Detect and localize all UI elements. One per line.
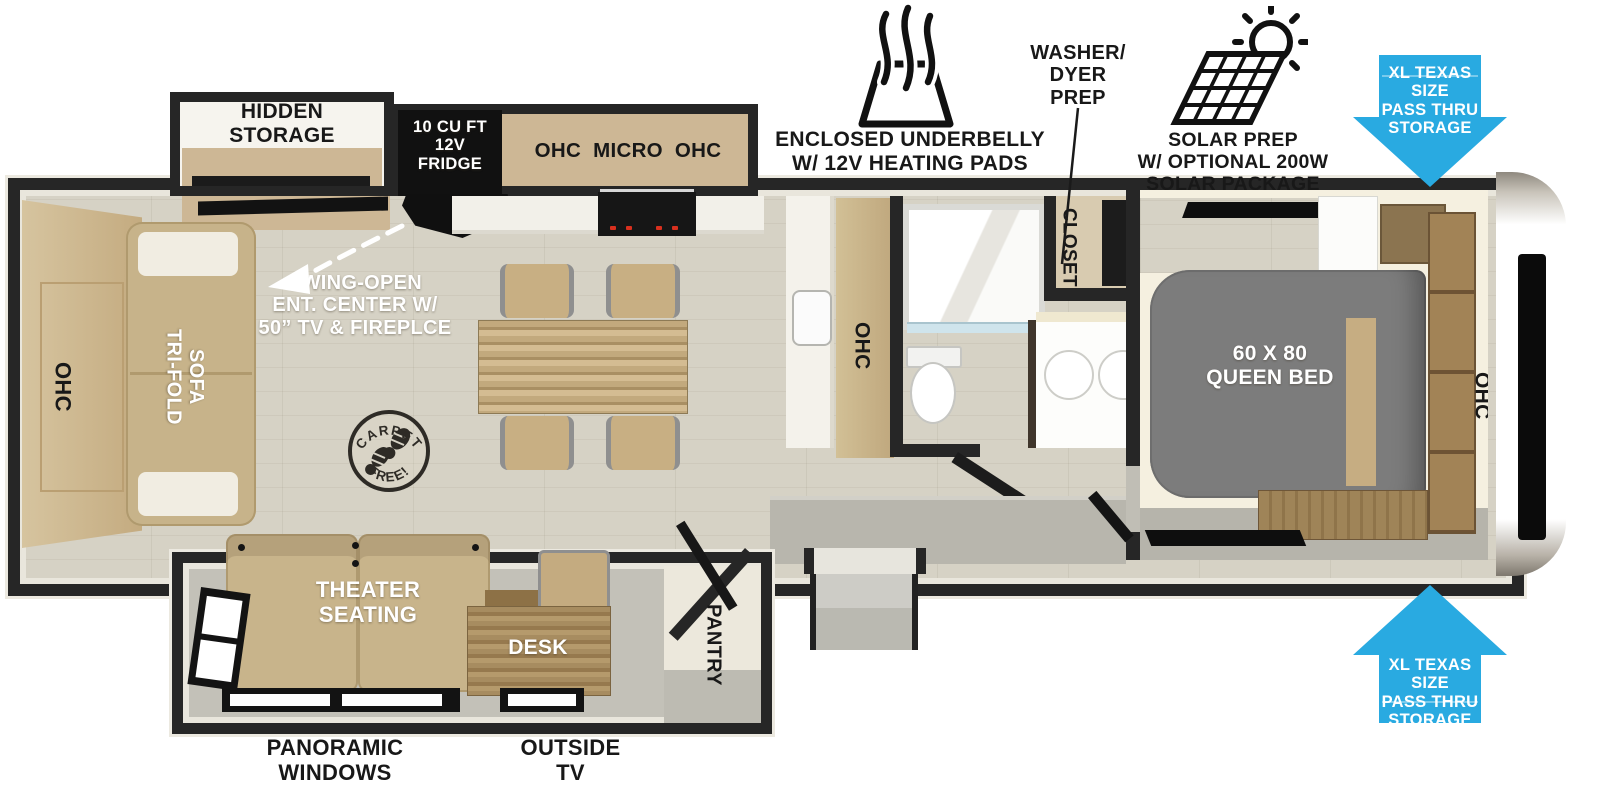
carpet-free-stamp: CARPET FREE! — [346, 408, 432, 494]
panoramic-windows-label: PANORAMIC WINDOWS — [230, 736, 440, 785]
rear-overhead-label: OHC — [50, 332, 75, 442]
dining-chair — [606, 416, 680, 470]
cupholder — [352, 542, 359, 549]
cupholder — [472, 544, 479, 551]
slide-window — [500, 688, 584, 712]
vanity-sink — [1098, 350, 1126, 400]
window-pane — [195, 639, 236, 682]
window-pane — [230, 694, 330, 706]
bedroom-doorway-floor — [1126, 466, 1140, 532]
underbelly-label: ENCLOSED UNDERBELLY W/ 12V HEATING PADS — [745, 128, 1075, 175]
queen-bed-label: 60 X 80 QUEEN BED — [1150, 342, 1390, 389]
bedroom-wall-upper — [1126, 190, 1140, 466]
bathroom-left-wall — [890, 196, 903, 448]
heating-pads-icon — [842, 2, 970, 130]
hidden-storage-label: HIDDEN STORAGE — [180, 100, 384, 147]
closet-left-wall — [1044, 196, 1056, 296]
slide-window — [222, 688, 460, 712]
outside-tv-label: OUTSIDE TV — [488, 736, 653, 785]
entry-steps — [810, 574, 918, 650]
kitchen-counter-overhead-label: OHC — [850, 298, 874, 393]
cupholder — [352, 560, 359, 567]
dining-chair — [500, 264, 574, 318]
bathroom-bottom-wall — [890, 444, 980, 457]
closet-label: CLOSET — [1058, 205, 1079, 290]
fridge-label: 10 CU FT 12V FRIDGE — [398, 118, 502, 173]
solar-prep-label: SOLAR PREP W/ OPTIONAL 200W SOLAR PACKAG… — [1118, 130, 1348, 195]
desk-label: DESK — [467, 636, 609, 660]
bathroom-vanity — [1036, 322, 1126, 448]
vanity-backsplash — [1036, 312, 1126, 322]
sofa-pillow-top — [138, 232, 238, 276]
burner-light — [672, 226, 678, 230]
hidden-storage-window — [192, 176, 370, 186]
washer-dryer-label: WASHER/ DYER PREP — [1008, 42, 1148, 109]
swing-open-note: SWING-OPEN ENT. CENTER W/ 50” TV & FIREP… — [200, 272, 510, 339]
rv-floorplan-diagram: HIDDEN STORAGE 10 CU FT 12V FRIDGE OHC M… — [0, 0, 1600, 791]
kitchen-overhead-label: OHC MICRO OHC — [500, 140, 756, 163]
cupholder — [238, 544, 245, 551]
bedroom-wardrobe-column — [1428, 212, 1476, 534]
burner-light — [626, 226, 632, 230]
entry-door-jamb — [916, 548, 926, 574]
shower — [903, 204, 1045, 330]
entry-door-jamb — [804, 548, 814, 574]
vanity-sink — [1044, 350, 1094, 400]
bedroom-bottom-window — [1145, 530, 1306, 546]
window-pane — [342, 694, 442, 706]
bedroom-cabinet-white — [1318, 196, 1378, 272]
dining-chair — [500, 416, 574, 470]
burner-light — [656, 226, 662, 230]
pass-thru-bottom-label: XL TEXAS SIZE PASS THRU STORAGE — [1379, 656, 1481, 730]
closet-door — [1102, 200, 1126, 286]
sofa-pillow-bottom — [138, 472, 238, 516]
pass-thru-top-label: XL TEXAS SIZE PASS THRU STORAGE — [1379, 64, 1481, 138]
shower-glass — [907, 322, 1041, 333]
pantry-label: PANTRY — [702, 586, 724, 704]
front-window — [1518, 254, 1546, 540]
entry-door-opening — [812, 548, 918, 574]
theater-seating-label: THEATER SEATING — [268, 578, 468, 627]
dining-chair — [606, 264, 680, 318]
toilet — [910, 362, 956, 424]
kitchen-sink — [792, 290, 832, 346]
bedroom: 60 X 80 QUEEN BED OHC — [1140, 190, 1488, 560]
burner-light — [610, 226, 616, 230]
solar-prep-icon — [1158, 6, 1308, 128]
bedroom-overhead-label: OHC — [1470, 348, 1488, 443]
window-pane — [202, 596, 243, 639]
window-pane — [508, 694, 576, 706]
